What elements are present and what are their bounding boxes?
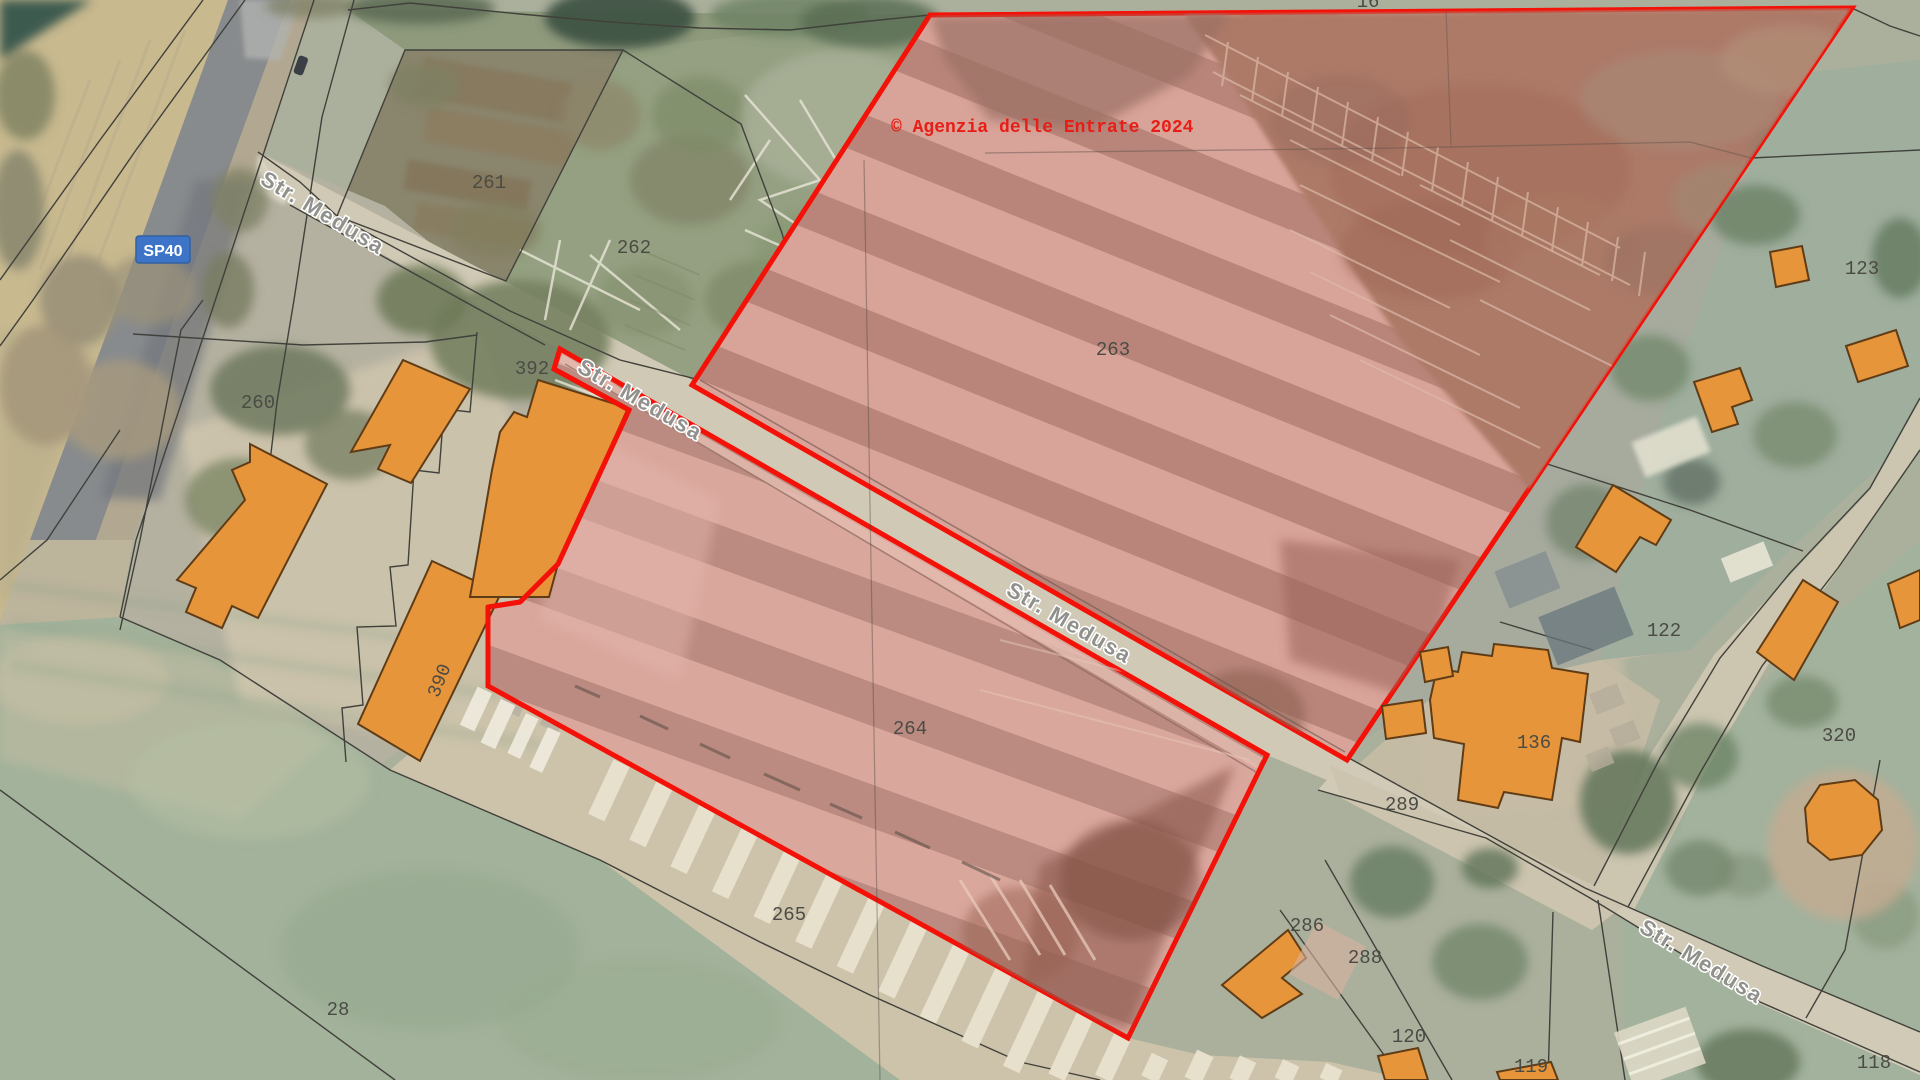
svg-text:286: 286 (1290, 915, 1324, 937)
svg-text:262: 262 (617, 237, 651, 259)
svg-text:120: 120 (1392, 1026, 1426, 1048)
svg-text:261: 261 (472, 172, 506, 194)
svg-text:392: 392 (515, 358, 549, 380)
svg-text:123: 123 (1845, 258, 1879, 280)
svg-text:118: 118 (1857, 1052, 1891, 1074)
svg-text:289: 289 (1385, 794, 1419, 816)
svg-text:260: 260 (241, 392, 275, 414)
svg-text:265: 265 (772, 904, 806, 926)
svg-text:SP40: SP40 (143, 243, 182, 260)
svg-text:119: 119 (1514, 1056, 1548, 1078)
svg-text:263: 263 (1096, 339, 1130, 361)
svg-text:© Agenzia delle Entrate 2024: © Agenzia delle Entrate 2024 (891, 118, 1194, 138)
svg-text:288: 288 (1348, 947, 1382, 969)
svg-text:122: 122 (1647, 620, 1681, 642)
svg-text:28: 28 (327, 999, 350, 1021)
svg-text:136: 136 (1517, 732, 1551, 754)
svg-text:16: 16 (1357, 0, 1380, 13)
svg-text:264: 264 (893, 718, 927, 740)
svg-text:320: 320 (1822, 725, 1856, 747)
